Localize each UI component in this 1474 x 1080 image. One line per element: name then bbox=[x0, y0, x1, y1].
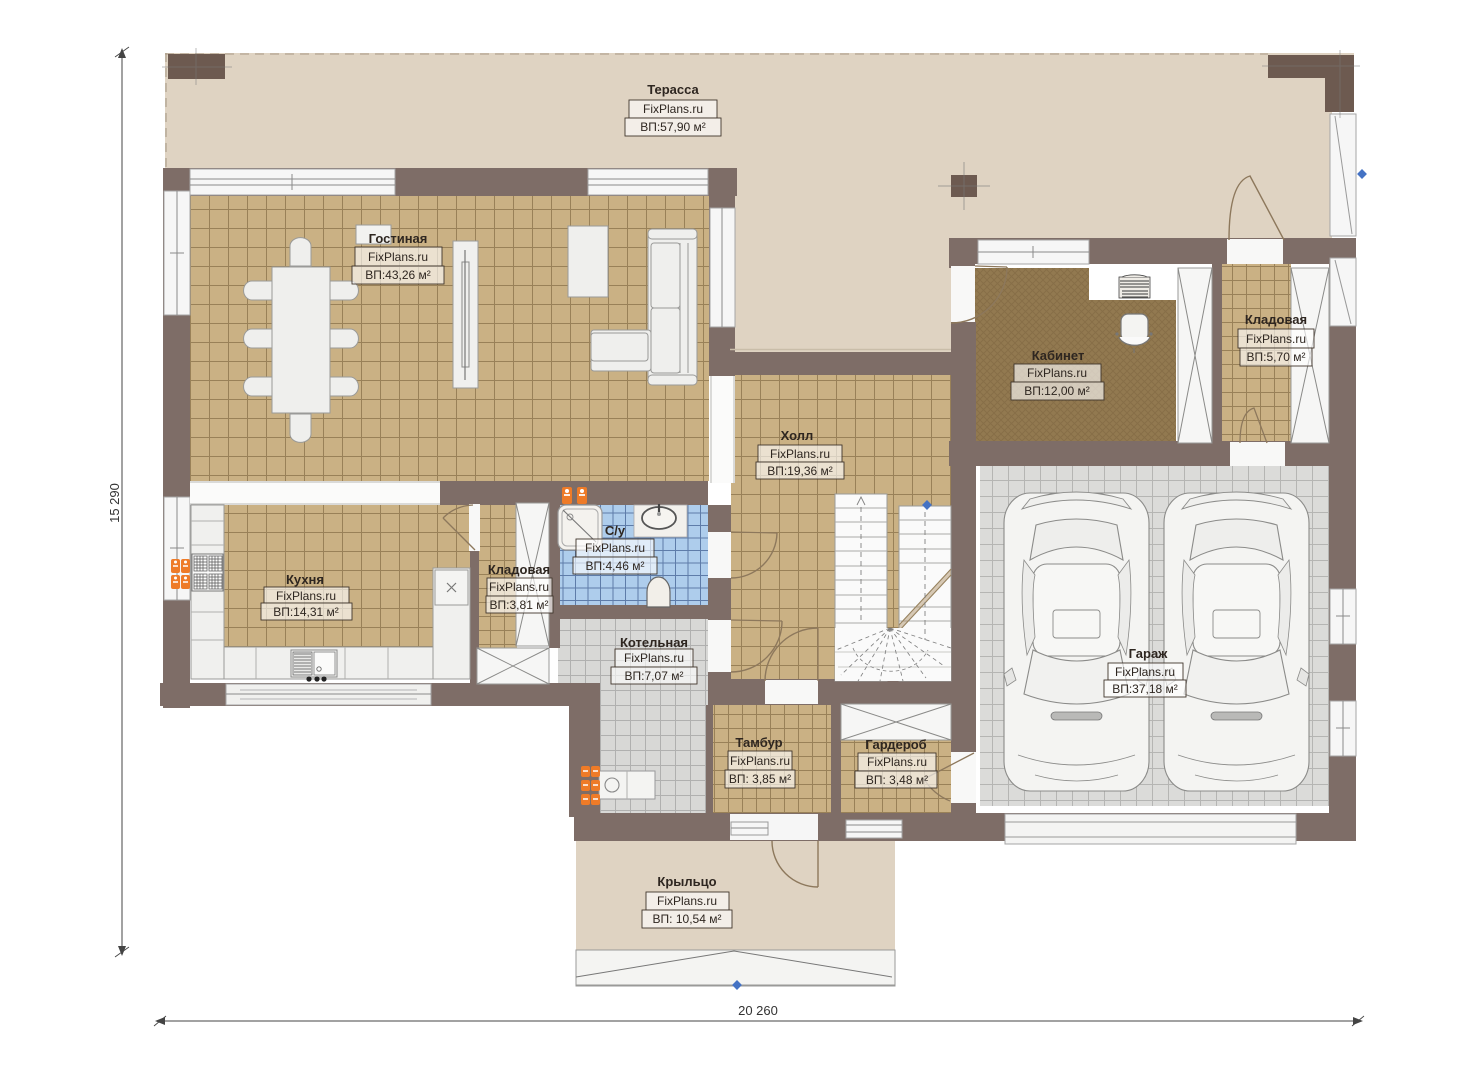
svg-text:ВП:43,26 м²: ВП:43,26 м² bbox=[365, 268, 431, 282]
svg-text:Холл: Холл bbox=[781, 428, 814, 443]
svg-text:ВП:14,31 м²: ВП:14,31 м² bbox=[273, 605, 339, 619]
svg-text:FixPlans.ru: FixPlans.ru bbox=[368, 250, 428, 264]
svg-text:FixPlans.ru: FixPlans.ru bbox=[657, 894, 717, 908]
svg-text:ВП:3,81 м²: ВП:3,81 м² bbox=[490, 598, 549, 612]
svg-text:ВП: 3,85 м²: ВП: 3,85 м² bbox=[729, 772, 791, 786]
svg-text:FixPlans.ru: FixPlans.ru bbox=[585, 541, 645, 555]
svg-text:Гараж: Гараж bbox=[1129, 646, 1169, 661]
svg-text:FixPlans.ru: FixPlans.ru bbox=[730, 754, 790, 768]
svg-text:FixPlans.ru: FixPlans.ru bbox=[624, 651, 684, 665]
svg-text:ВП: 3,48 м²: ВП: 3,48 м² bbox=[866, 773, 928, 787]
svg-text:Крыльцо: Крыльцо bbox=[657, 874, 716, 889]
svg-text:ВП:7,07 м²: ВП:7,07 м² bbox=[625, 669, 684, 683]
svg-text:FixPlans.ru: FixPlans.ru bbox=[643, 102, 703, 116]
svg-text:С/у: С/у bbox=[605, 523, 626, 538]
svg-text:FixPlans.ru: FixPlans.ru bbox=[489, 580, 549, 594]
svg-text:Терасса: Терасса bbox=[647, 82, 699, 97]
svg-text:FixPlans.ru: FixPlans.ru bbox=[1115, 665, 1175, 679]
svg-text:FixPlans.ru: FixPlans.ru bbox=[276, 589, 336, 603]
svg-text:ВП:37,18 м²: ВП:37,18 м² bbox=[1112, 682, 1178, 696]
svg-text:ВП:19,36 м²: ВП:19,36 м² bbox=[767, 464, 833, 478]
svg-text:FixPlans.ru: FixPlans.ru bbox=[867, 755, 927, 769]
svg-text:ВП:12,00 м²: ВП:12,00 м² bbox=[1024, 384, 1090, 398]
svg-text:ВП: 10,54 м²: ВП: 10,54 м² bbox=[653, 912, 722, 926]
svg-text:FixPlans.ru: FixPlans.ru bbox=[1246, 332, 1306, 346]
svg-text:Гостиная: Гостиная bbox=[369, 231, 428, 246]
svg-text:ВП:57,90 м²: ВП:57,90 м² bbox=[640, 120, 706, 134]
svg-text:Кабинет: Кабинет bbox=[1032, 348, 1085, 363]
svg-text:ВП:4,46 м²: ВП:4,46 м² bbox=[586, 559, 645, 573]
svg-text:Кладовая: Кладовая bbox=[1245, 312, 1307, 327]
svg-text:FixPlans.ru: FixPlans.ru bbox=[770, 447, 830, 461]
svg-text:Котельная: Котельная bbox=[620, 635, 688, 650]
svg-text:Кухня: Кухня bbox=[286, 572, 324, 587]
svg-text:15 290: 15 290 bbox=[107, 483, 122, 523]
svg-text:20 260: 20 260 bbox=[738, 1003, 778, 1018]
svg-text:Кладовая: Кладовая bbox=[488, 562, 550, 577]
svg-text:ВП:5,70 м²: ВП:5,70 м² bbox=[1247, 350, 1306, 364]
svg-text:Гардероб: Гардероб bbox=[865, 737, 926, 752]
svg-text:FixPlans.ru: FixPlans.ru bbox=[1027, 366, 1087, 380]
svg-text:Тамбур: Тамбур bbox=[735, 735, 782, 750]
